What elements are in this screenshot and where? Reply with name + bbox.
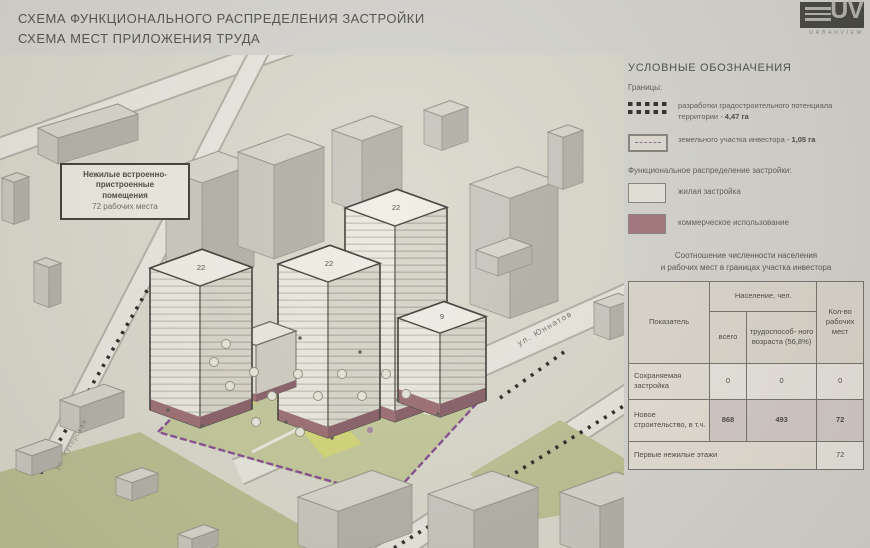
legend-header: УСЛОВНЫЕ ОБОЗНАЧЕНИЯ [628,62,864,74]
callout-line-1: Нежилые встроенно- [65,170,185,180]
legend-group-borders: Границы: [628,83,864,92]
tree-icon [338,370,347,379]
logo-monogram: UV [830,0,863,25]
tower-d-floors-label: 9 [440,312,444,321]
table-header-indicator: Показатель [629,281,710,363]
table-row-preserved: Сохраняемая застройка 0 0 0 [629,363,864,399]
title-line-1: СХЕМА ФУНКЦИОНАЛЬНОГО РАСПРЕДЕЛЕНИЯ ЗАСТ… [18,9,425,29]
callout-line-2: пристроенные [65,180,185,190]
title-line-2: СХЕМА МЕСТ ПРИЛОЖЕНИЯ ТРУДА [18,29,425,49]
tree-icon [226,382,235,391]
context-building [424,101,468,151]
legend-item-potential-text: разработки градостроительного потенциала… [678,100,864,123]
tree-icon [382,370,391,379]
context-building [548,125,583,190]
tree-icon [222,340,231,349]
legend-group-functional: Функциональное распределение застройки: [628,166,864,175]
tree-icon [210,358,219,367]
legend-item-commercial-label: коммерческое использование [678,214,789,227]
residential-swatch [628,183,668,203]
shrub-icon [166,408,170,412]
row-new-working: 493 [746,399,817,441]
logo-mark: UV [800,2,864,28]
legend-item-investor: земельного участка инвестора - 1,05 га [628,134,864,152]
tree-icon [250,368,259,377]
row-preserved-jobs: 0 [817,363,864,399]
callout-jobs-count: 72 рабочих места [65,202,185,212]
legend-item-residential-label: жилая застройка [678,183,741,196]
callout-line-3: помещения [65,191,185,201]
tree-icon [296,428,305,437]
legend-item-potential: разработки градостроительного потенциала… [628,100,864,123]
investor-boundary-swatch [628,134,668,152]
context-building [2,173,29,225]
legend-panel: УСЛОВНЫЕ ОБОЗНАЧЕНИЯ Границы: разработки… [628,62,864,470]
commercial-swatch [628,214,668,234]
page-title: СХЕМА ФУНКЦИОНАЛЬНОГО РАСПРЕДЕЛЕНИЯ ЗАСТ… [18,9,425,49]
dotted-boundary-swatch [628,100,668,118]
tree-icon [402,390,411,399]
shrub-icon [298,336,302,340]
row-new-jobs: 72 [817,399,864,441]
urbanview-logo: UV URBANVIEW [788,2,864,36]
shrub-icon [396,398,400,402]
table-row-new-construction: Новое строительство, в т.ч. 868 493 72 [629,399,864,441]
shrub-icon [330,436,334,440]
legend-item-investor-text: земельного участка инвестора - 1,05 га [678,134,815,146]
row-preserved-label: Сохраняемая застройка [629,363,710,399]
tower-a-floors-label: 22 [197,263,205,272]
row-ground-floors-jobs: 72 [817,441,864,469]
legend-item-potential-label: разработки градостроительного потенциала… [678,101,832,121]
callout-nonresidential-premises: Нежилые встроенно- пристроенные помещени… [60,163,190,220]
context-building [34,258,61,308]
logo-bars-icon [805,7,831,24]
legend-item-residential: жилая застройка [628,183,864,203]
new-building [150,249,252,428]
table-title-line-1: Соотношение численности населения [628,250,864,262]
tree-icon [314,392,323,401]
table-title: Соотношение численности населения и рабо… [628,250,864,274]
row-preserved-working: 0 [746,363,817,399]
legend-item-commercial: коммерческое использование [628,214,864,234]
tree-icon [358,392,367,401]
tree-icon [268,392,277,401]
shrub-icon [284,420,288,424]
tree-icon [294,370,303,379]
table-header-jobs: Кол-во рабочих мест [817,281,864,363]
row-ground-floors-label: Первые нежилые этажи [629,441,817,469]
legend-item-investor-label: земельного участка инвестора - [678,135,791,144]
context-building [238,134,324,259]
tower-c-floors-label: 22 [392,203,400,212]
shrub-icon [358,350,362,354]
tree-icon [252,418,261,427]
table-row-ground-floors: Первые нежилые этажи 72 [629,441,864,469]
legend-item-potential-value: 4,47 га [725,112,749,121]
shrub-icon [436,412,440,416]
table-header-total: всего [710,311,747,363]
table-header-population: Население, чел. [710,281,817,311]
row-preserved-total: 0 [710,363,747,399]
population-jobs-table: Показатель Население, чел. Кол-во рабочи… [628,281,864,470]
logo-name: URBANVIEW [788,30,864,36]
row-new-label: Новое строительство, в т.ч. [629,399,710,441]
tower-b-floors-label: 22 [325,259,333,268]
legend-item-investor-value: 1,05 га [791,135,815,144]
row-new-total: 868 [710,399,747,441]
shrub-icon [200,424,204,428]
table-header-working-age: трудоспособ- ного возраста (56,8%) [746,311,817,363]
table-title-line-2: и рабочих мест в границах участка инвест… [628,262,864,274]
